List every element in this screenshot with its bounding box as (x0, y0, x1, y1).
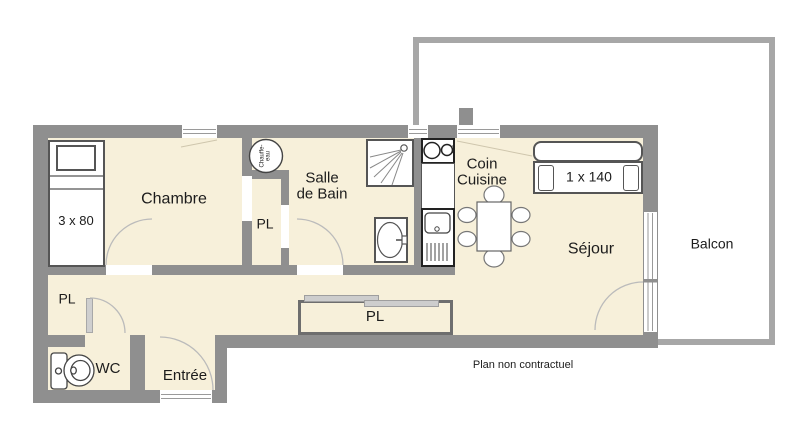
balcony-wall-left (413, 37, 419, 129)
floor-plan: Chambre Salle de Bain Coin Cuisine Séjou… (0, 0, 800, 425)
window-kitchen-1 (408, 125, 428, 138)
wall-wc-entree (130, 335, 145, 403)
label-salle-de-bain: Salle de Bain (297, 170, 348, 202)
washbasin-icon (374, 217, 408, 263)
wall-left (33, 125, 48, 403)
label-placard-hall: PL (366, 309, 384, 325)
balcony-glazed-door (644, 212, 657, 332)
wall-bottom-right (215, 335, 658, 348)
wall-kitchen-stub (414, 267, 455, 275)
label-water-heater-line2: eau (266, 145, 272, 168)
wall-wc-top (33, 335, 85, 347)
label-bed-size: 3 x 80 (58, 214, 93, 228)
label-entree: Entrée (163, 368, 207, 384)
wall-balcony-pier (459, 108, 473, 125)
label-water-heater: Chauffe- eau (260, 145, 273, 168)
label-placard-bath: PL (256, 217, 273, 232)
label-placard-left: PL (58, 292, 75, 307)
label-coin-cuisine-line2: Cuisine (457, 172, 507, 188)
label-wc: WC (96, 361, 121, 377)
label-salle-de-bain-line2: de Bain (297, 186, 348, 202)
label-balcon: Balcon (691, 237, 734, 252)
kitchen-counter-icon (421, 163, 455, 209)
balcony-wall-bottom (658, 339, 775, 345)
bed-pillow-icon (56, 145, 96, 171)
kitchen-sink-icon (421, 208, 455, 267)
balcony-wall-top (413, 37, 775, 43)
window-kitchen-2 (457, 125, 500, 138)
balcony-wall-right (769, 37, 775, 345)
label-chambre: Chambre (141, 192, 207, 209)
cooktop-icon (421, 138, 455, 164)
door-opening-chambre-placard (242, 176, 252, 221)
door-opening-placard (281, 205, 289, 248)
door-opening-bathroom (297, 265, 343, 275)
wall-bath-kitchen (414, 138, 421, 267)
wc-door-leaf (86, 298, 93, 333)
wall-entree-right (215, 335, 227, 403)
window-chambre (182, 125, 217, 138)
sofa-armrest-left-icon (538, 165, 554, 191)
label-sejour: Séjour (568, 242, 614, 259)
door-opening-chambre (106, 265, 152, 275)
label-coin-cuisine-line1: Coin (457, 156, 507, 172)
label-salle-de-bain-line1: Salle (297, 170, 348, 186)
label-disclaimer: Plan non contractuel (473, 360, 573, 372)
shower-icon (366, 139, 414, 187)
closet-sliding-door-right (364, 300, 439, 307)
sofa-back-icon (533, 141, 643, 162)
wall-top (33, 125, 658, 138)
entrance-door-sill (160, 390, 212, 403)
label-sofa-size: 1 x 140 (566, 170, 612, 185)
sofa-armrest-right-icon (623, 165, 639, 191)
label-coin-cuisine: Coin Cuisine (457, 156, 507, 188)
